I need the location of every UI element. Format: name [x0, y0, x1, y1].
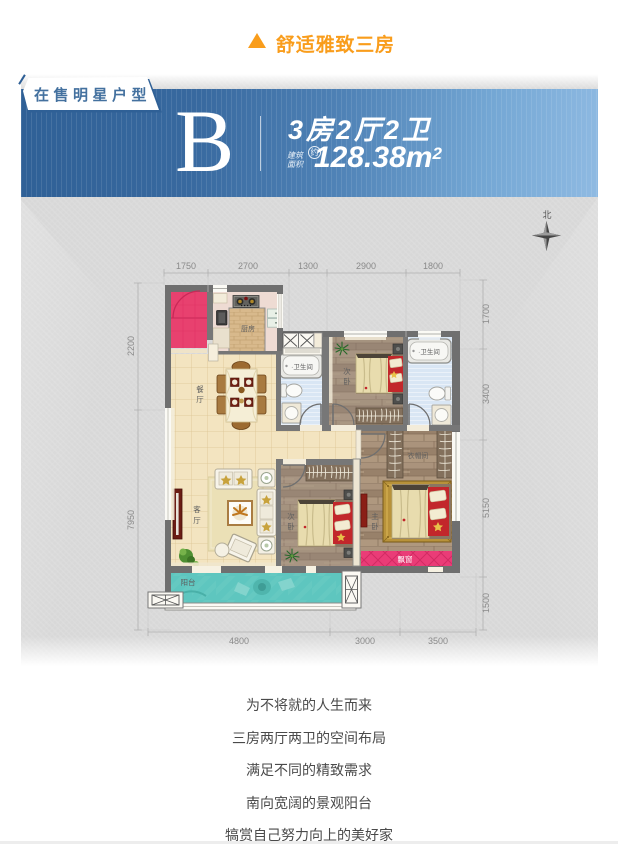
svg-text:厅: 厅	[196, 395, 204, 404]
svg-text:次: 次	[343, 366, 351, 376]
svg-text:3500: 3500	[428, 636, 448, 646]
svg-text:1700: 1700	[481, 304, 491, 324]
svg-text:2200: 2200	[126, 336, 136, 356]
svg-text:7950: 7950	[126, 510, 136, 530]
svg-text:·卫生间: ·卫生间	[418, 347, 440, 356]
svg-text:2900: 2900	[356, 261, 376, 271]
svg-text:厅: 厅	[193, 516, 201, 525]
svg-text:1800: 1800	[423, 261, 443, 271]
svg-text:卧: 卧	[371, 522, 379, 531]
svg-text:4800: 4800	[229, 636, 249, 646]
svg-text:北: 北	[542, 210, 551, 220]
svg-text:·卫生间: ·卫生间	[291, 362, 313, 371]
svg-text:卧: 卧	[343, 377, 351, 386]
svg-text:飘窗: 飘窗	[398, 554, 413, 564]
svg-text:5150: 5150	[481, 498, 491, 518]
svg-text:主: 主	[371, 511, 379, 521]
svg-text:2700: 2700	[238, 261, 258, 271]
svg-text:1750: 1750	[176, 261, 196, 271]
svg-text:餐: 餐	[196, 385, 204, 394]
svg-text:厨房: 厨房	[241, 324, 255, 333]
svg-text:1500: 1500	[481, 593, 491, 613]
svg-text:客: 客	[193, 504, 201, 514]
svg-text:次: 次	[287, 511, 295, 521]
svg-text:1300: 1300	[298, 261, 318, 271]
svg-text:阳台: 阳台	[181, 577, 196, 587]
svg-text:衣帽间: 衣帽间	[408, 451, 429, 460]
svg-text:卧: 卧	[287, 522, 295, 531]
svg-text:3400: 3400	[481, 384, 491, 404]
svg-text:3000: 3000	[355, 636, 375, 646]
